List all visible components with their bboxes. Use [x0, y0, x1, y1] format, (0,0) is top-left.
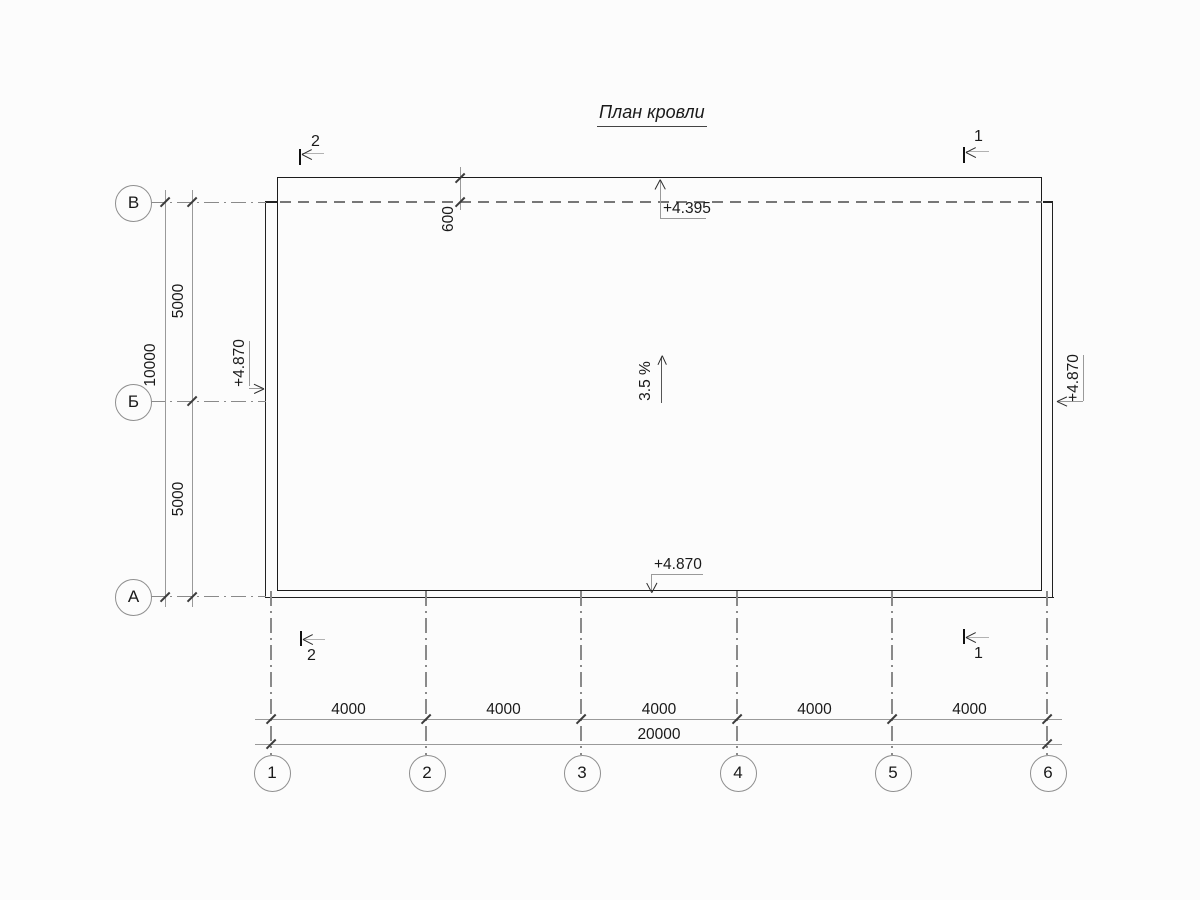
- slope-label: 3.5 %: [637, 341, 655, 421]
- col-axis-bubble-5: 5: [875, 755, 912, 792]
- dim-label-bottom-total: 20000: [619, 726, 699, 744]
- hidden-wall-edge: [280, 201, 1042, 202]
- section-label-top-left: 2: [311, 133, 320, 151]
- roof-outline: [277, 177, 1042, 591]
- dim-label-left-total: 10000: [142, 325, 160, 405]
- dim-label-left-segment-2: 5000: [170, 459, 188, 539]
- row-axis-label: А: [128, 587, 139, 607]
- dim-line-left-total: [165, 190, 166, 607]
- elevation-label-left: +4.870: [231, 323, 249, 403]
- grid-line-2: [425, 591, 426, 755]
- drawing-title: План кровли: [597, 102, 707, 127]
- col-axis-bubble-2: 2: [409, 755, 446, 792]
- wall-line-bottom: [265, 597, 1054, 599]
- dim-line-eave-overhang: [460, 167, 461, 210]
- section-label-bottom-left: 2: [307, 647, 316, 665]
- slope-arrow-line: [661, 357, 662, 403]
- col-axis-bubble-1: 1: [254, 755, 291, 792]
- wall-line-left: [265, 201, 267, 598]
- col-axis-label: 5: [888, 763, 897, 783]
- elevation-label-top: +4.395: [663, 200, 711, 218]
- dim-label-bottom-segment-5: 4000: [930, 701, 1010, 719]
- grid-line-6: [1046, 591, 1047, 755]
- drawing-sheet: План кровли В Б А 10000 5000 5000 600 +4…: [0, 0, 1200, 900]
- dim-label-eave-overhang: 600: [440, 179, 458, 259]
- section-cut-bar: [963, 147, 966, 163]
- col-axis-bubble-3: 3: [564, 755, 601, 792]
- dim-label-bottom-segment-4: 4000: [775, 701, 855, 719]
- axis-line-A-row: [150, 596, 266, 597]
- col-axis-bubble-4: 4: [720, 755, 757, 792]
- elevation-label-bottom: +4.870: [654, 556, 702, 574]
- row-axis-bubble-a: А: [115, 579, 152, 616]
- grid-line-4: [736, 591, 737, 755]
- dim-label-bottom-segment-2: 4000: [464, 701, 544, 719]
- dim-label-bottom-segment-3: 4000: [619, 701, 699, 719]
- wall-top-stub-right: [1043, 201, 1053, 203]
- col-axis-label: 2: [422, 763, 431, 783]
- dim-label-left-segment-1: 5000: [170, 261, 188, 341]
- col-axis-label: 6: [1043, 763, 1052, 783]
- elevation-leader-top: [660, 180, 661, 218]
- wall-top-stub-left: [265, 201, 278, 203]
- col-axis-bubble-6: 6: [1030, 755, 1067, 792]
- section-label-bottom-right: 1: [974, 645, 983, 663]
- grid-line-1: [270, 591, 271, 755]
- elevation-underline-left: [249, 341, 250, 386]
- col-axis-label: 3: [577, 763, 586, 783]
- row-axis-label: Б: [128, 392, 139, 412]
- elevation-leader-bottom: [651, 574, 652, 590]
- section-cut-bar: [299, 149, 302, 165]
- section-label-top-right: 1: [974, 128, 983, 146]
- grid-line-3: [580, 591, 581, 755]
- wall-line-right: [1052, 201, 1054, 598]
- row-axis-bubble-v: В: [115, 185, 152, 222]
- axis-line-B-row: [150, 202, 266, 203]
- col-axis-label: 1: [267, 763, 276, 783]
- grid-line-5: [891, 591, 892, 755]
- elevation-label-right: +4.870: [1065, 338, 1083, 418]
- col-axis-label: 4: [733, 763, 742, 783]
- dim-label-bottom-segment-1: 4000: [309, 701, 389, 719]
- row-axis-label: В: [128, 193, 139, 213]
